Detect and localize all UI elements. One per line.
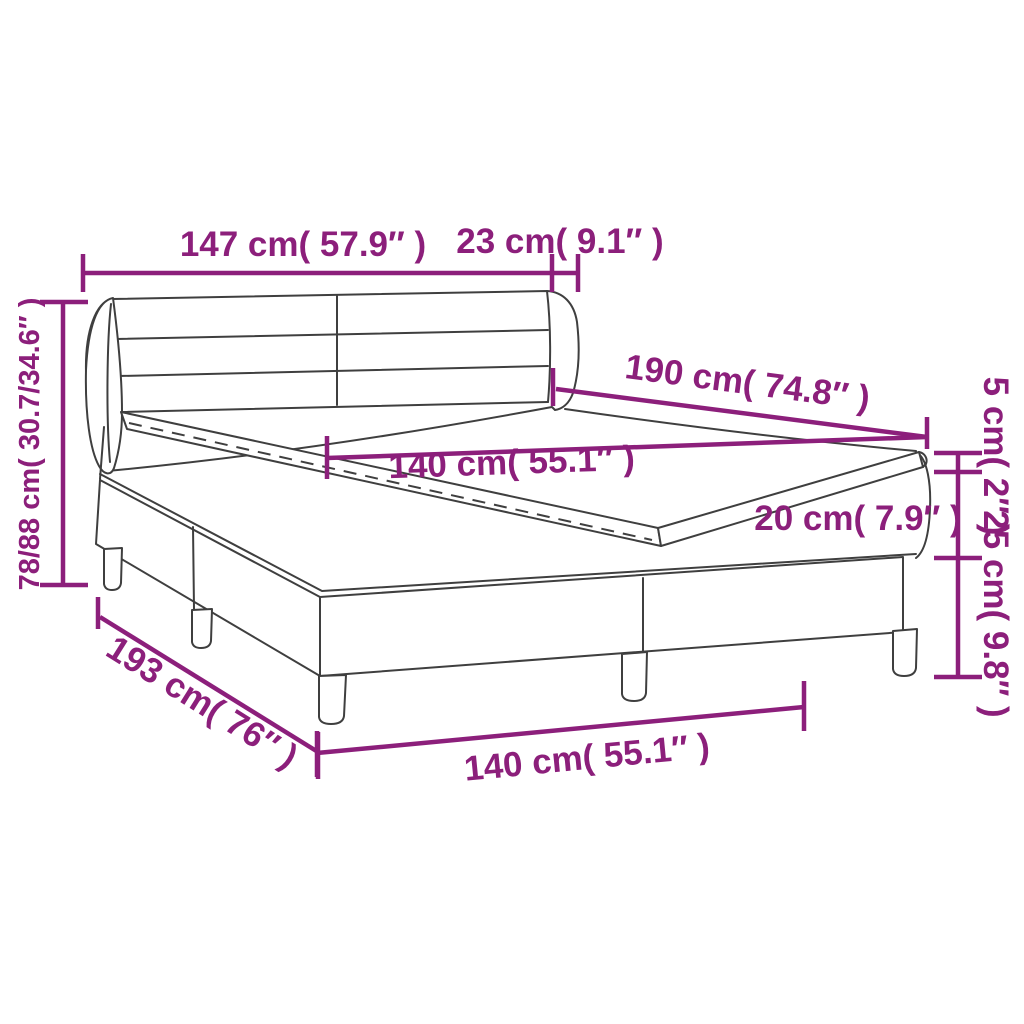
bed-leg-mid-side <box>192 609 212 648</box>
bed-leg-left <box>104 548 122 590</box>
base-side-split-seam <box>193 527 194 609</box>
bed-dimension-diagram: 147 cm( 57.9″ ) 23 cm( 9.1″ ) 78/88 cm( … <box>0 0 1024 1024</box>
dim-label-base-length: 193 cm( 76″ ) <box>100 628 305 776</box>
dim-label-mattress-thickness: 20 cm( 7.9″ ) <box>754 499 961 538</box>
dim-right-heights <box>934 453 982 677</box>
dim-label-headboard-width: 147 cm( 57.9″ ) <box>180 225 426 264</box>
dim-label-base-height: 25 cm( 9.8″ ) <box>976 510 1015 717</box>
dim-label-bed-length: 190 cm( 74.8″ ) <box>623 347 872 418</box>
bed-leg-front-corner <box>319 675 346 724</box>
dim-label-total-height: 78/88 cm( 30.7/34.6″ ) <box>14 298 46 591</box>
bed-leg-mid-foot <box>622 652 647 701</box>
bed-leg-far-right <box>893 629 917 676</box>
dimension-diagram-page: 147 cm( 57.9″ ) 23 cm( 9.1″ ) 78/88 cm( … <box>0 0 1024 1024</box>
base-foot-face <box>320 557 903 676</box>
dim-total-height <box>40 302 88 585</box>
dim-label-headboard-depth: 23 cm( 9.1″ ) <box>456 222 663 261</box>
dim-label-mattress-width: 140 cm( 55.1″ ) <box>388 439 636 487</box>
